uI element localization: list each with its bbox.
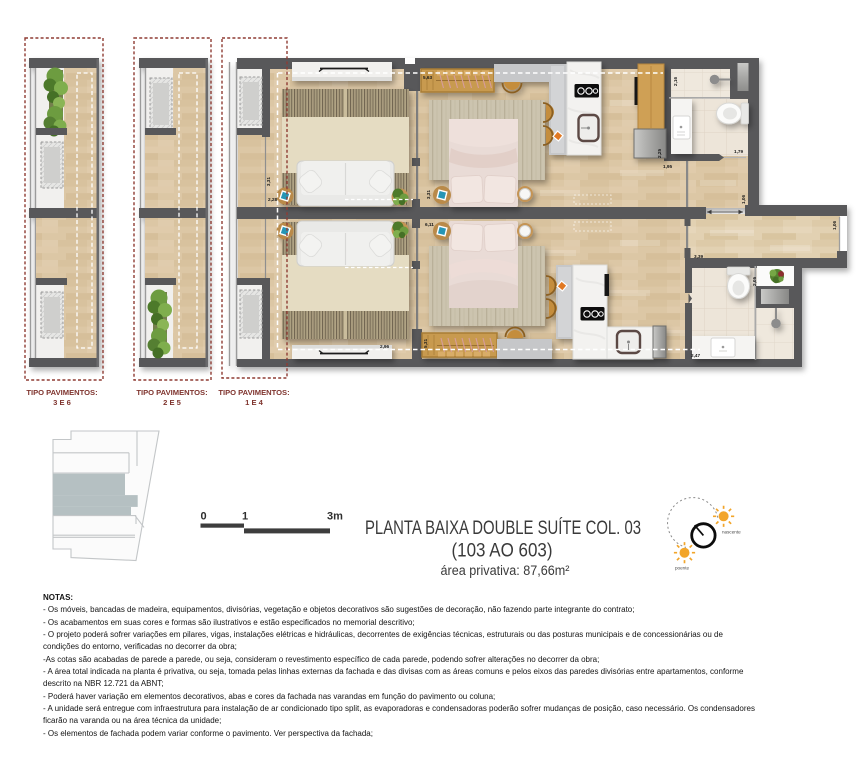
svg-text:3,31: 3,31 <box>426 190 431 200</box>
svg-text:1,95: 1,95 <box>663 164 673 169</box>
svg-text:TIPO PAVIMENTOS:: TIPO PAVIMENTOS: <box>26 388 97 397</box>
svg-text:(103 AO 603): (103 AO 603) <box>452 540 553 562</box>
svg-text:2,47: 2,47 <box>691 353 701 358</box>
svg-text:2,28: 2,28 <box>268 197 278 202</box>
svg-text:1 E 4: 1 E 4 <box>245 398 264 407</box>
svg-text:PLANTA BAIXA DOUBLE SUÍTE COL.: PLANTA BAIXA DOUBLE SUÍTE COL. 03 <box>365 516 641 539</box>
svg-text:2,05: 2,05 <box>752 276 757 286</box>
svg-text:nascente: nascente <box>722 530 741 535</box>
svg-text:3m: 3m <box>327 511 343 523</box>
svg-text:área privativa: 87,66m²: área privativa: 87,66m² <box>441 563 570 578</box>
svg-text:2,96: 2,96 <box>380 344 390 349</box>
svg-text:3,39: 3,39 <box>694 254 704 259</box>
svg-text:2,25: 2,25 <box>657 148 662 158</box>
svg-text:1: 1 <box>242 511 248 523</box>
svg-text:3,31: 3,31 <box>266 177 271 187</box>
svg-text:5,63: 5,63 <box>423 75 433 80</box>
svg-text:2 E 5: 2 E 5 <box>163 398 182 407</box>
svg-text:5,31: 5,31 <box>423 338 428 348</box>
svg-text:1,06: 1,06 <box>741 194 746 204</box>
svg-text:1,06: 1,06 <box>832 220 837 230</box>
svg-text:2,16: 2,16 <box>673 76 678 86</box>
svg-text:3 E 6: 3 E 6 <box>53 398 71 407</box>
svg-text:6,11: 6,11 <box>425 222 434 227</box>
svg-text:1,79: 1,79 <box>734 149 744 154</box>
svg-text:TIPO PAVIMENTOS:: TIPO PAVIMENTOS: <box>218 388 289 397</box>
svg-text:poente: poente <box>675 566 689 571</box>
svg-text:TIPO PAVIMENTOS:: TIPO PAVIMENTOS: <box>136 388 207 397</box>
svg-text:0: 0 <box>201 511 207 523</box>
